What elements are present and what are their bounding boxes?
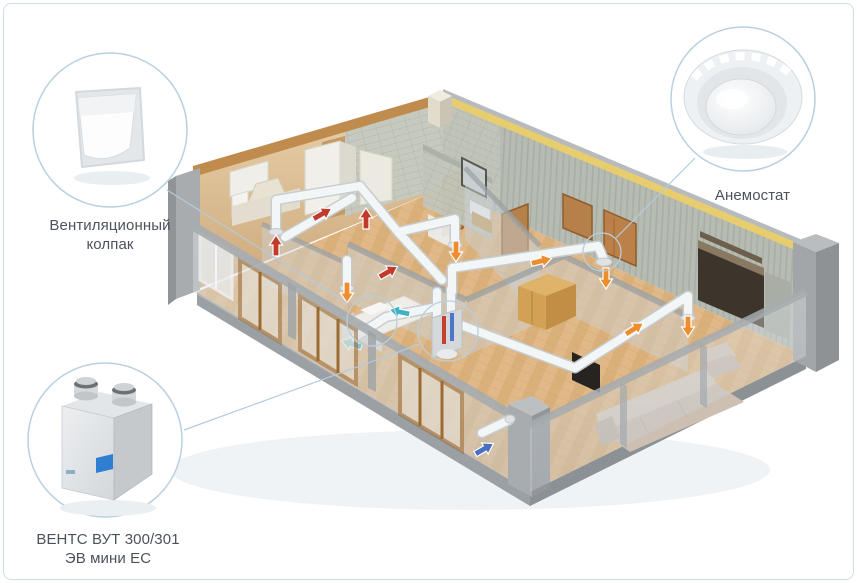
anemostat-label-text: Анемостат	[690, 186, 815, 205]
callout-vent-cap	[33, 53, 187, 207]
vent-cap-label-line2: колпак	[18, 235, 202, 254]
vent-cap-label: Вентиляционный колпак	[18, 216, 202, 254]
ventilation-scheme-page: Вентиляционный колпак Анемостат ВЕНТС ВУ…	[0, 0, 857, 583]
callout-hrv-unit	[28, 363, 182, 517]
apartment-cutaway-illustration	[0, 0, 857, 583]
hrv-logo	[66, 470, 75, 474]
hrv-unit-label: ВЕНТС ВУТ 300/301 ЭВ мини ЕС	[16, 530, 200, 568]
hrv-unit-label-line2: ЭВ мини ЕС	[16, 549, 200, 568]
roof-vent-block	[428, 90, 452, 128]
hrv-unit-label-line1: ВЕНТС ВУТ 300/301	[16, 530, 200, 549]
anemostat-label: Анемостат	[690, 186, 815, 205]
anemostat-in-scene	[596, 258, 612, 266]
vent-cap-label-line1: Вентиляционный	[18, 216, 202, 235]
callout-anemostat	[671, 27, 815, 171]
